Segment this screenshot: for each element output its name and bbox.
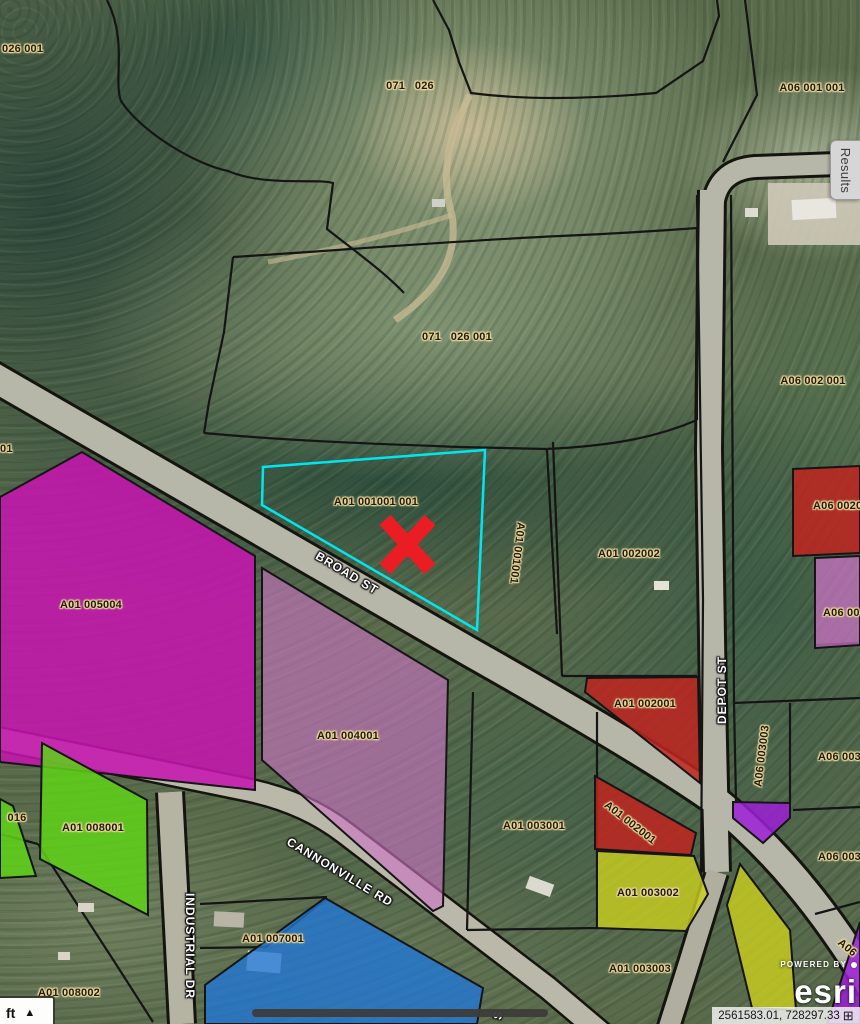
units-label: ft: [6, 1005, 15, 1021]
scale-bar: [252, 1009, 548, 1017]
triangle-icon: ▲: [24, 1007, 35, 1019]
esri-attribution: POWERED BY esri: [780, 957, 857, 1008]
esri-logo: esri: [780, 975, 857, 1008]
coordinate-settings-icon[interactable]: ⊞: [843, 1009, 854, 1022]
units-widget[interactable]: ft ▲: [0, 996, 55, 1024]
esri-globe-icon: [851, 962, 857, 968]
coordinate-value: 2561583.01, 728297.33: [718, 1010, 840, 1022]
imagery-texture: [0, 0, 860, 1024]
coordinate-readout: 2561583.01, 728297.33 ⊞: [712, 1007, 860, 1024]
map-viewer: 026 00101071 026071 026 001A06 001 001A0…: [0, 0, 860, 1024]
powered-by-label: POWERED BY: [780, 961, 847, 969]
results-tab[interactable]: Results: [830, 140, 860, 200]
results-tab-label: Results: [838, 147, 853, 192]
